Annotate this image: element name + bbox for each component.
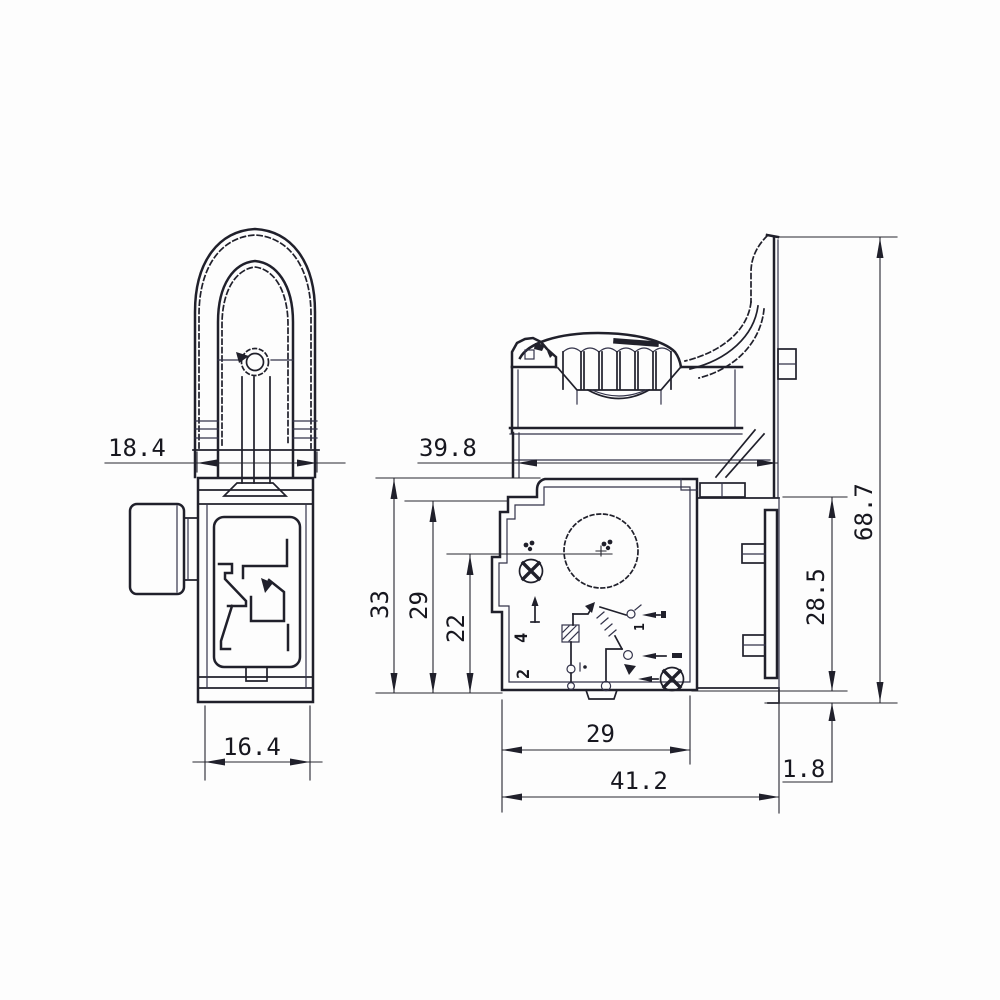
dim-label-29b: 29 bbox=[586, 720, 615, 748]
dim-label-41-2: 41.2 bbox=[610, 767, 668, 795]
dim-label-1-8: 1.8 bbox=[782, 755, 825, 783]
dim-label-33: 33 bbox=[366, 590, 394, 619]
dim-label-39-8: 39.8 bbox=[419, 434, 477, 462]
dim-label-16-4: 16.4 bbox=[223, 733, 281, 761]
schematic-terminal-1: 1 bbox=[633, 623, 648, 631]
schematic-terminal-4: 4 bbox=[512, 633, 532, 643]
side-body bbox=[198, 478, 313, 702]
dim-label-28-5: 28.5 bbox=[802, 568, 830, 626]
screw-icon bbox=[520, 560, 543, 583]
drawing-canvas: 18.4 16.4 bbox=[0, 0, 1000, 1000]
dim-label-29: 29 bbox=[405, 591, 433, 620]
screw-icon bbox=[661, 668, 684, 691]
dimension-overall-height: 68.7 bbox=[779, 237, 897, 703]
dimension-overall-width: 41.2 bbox=[502, 694, 779, 813]
dimension-trigger-depth: 39.8 bbox=[418, 434, 777, 467]
mold-mark-icon bbox=[524, 541, 535, 552]
speed-knob bbox=[130, 504, 198, 594]
mold-mark-icon bbox=[602, 540, 613, 551]
trigger-button bbox=[512, 333, 681, 404]
dimension-body-height: 33 bbox=[366, 478, 540, 693]
pivot-circle bbox=[218, 349, 293, 376]
switch-body: 4 2 bbox=[447, 479, 697, 699]
dimension-center-height: 22 bbox=[442, 554, 474, 693]
technical-drawing-page: 18.4 16.4 bbox=[0, 0, 1000, 1000]
dim-label-22: 22 bbox=[442, 614, 470, 643]
front-view: 4 2 bbox=[366, 235, 897, 813]
dimension-terminal-height: 28.5 bbox=[783, 497, 847, 691]
dimension-side-top-width: 18.4 bbox=[105, 434, 345, 472]
dim-label-18-4: 18.4 bbox=[108, 434, 166, 462]
terminal-block bbox=[697, 498, 779, 703]
side-view: 18.4 16.4 bbox=[105, 229, 345, 780]
contact-strips bbox=[219, 540, 288, 650]
schematic-terminal-2: 2 bbox=[514, 669, 534, 679]
dimension-base-offset: 1.8 bbox=[692, 691, 897, 783]
dim-label-68-7: 68.7 bbox=[850, 483, 878, 541]
wiring-schematic: 4 2 bbox=[512, 596, 682, 691]
upper-housing bbox=[510, 367, 770, 477]
dimension-side-bottom-width: 16.4 bbox=[193, 706, 322, 780]
